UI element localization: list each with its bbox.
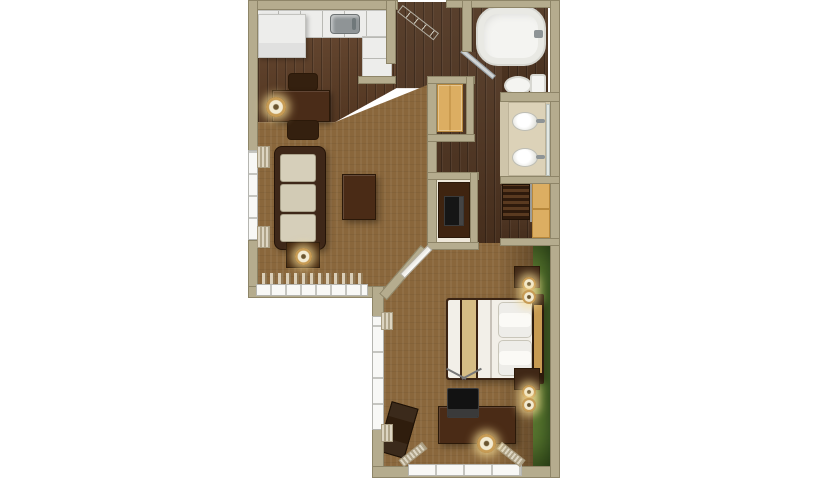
nightstand-top-lamp-1 — [522, 277, 536, 291]
kitchen-faucet — [352, 18, 356, 30]
bedroom-closet-bottom-wall — [500, 238, 560, 246]
bedroom-left-curtain-top — [381, 312, 393, 330]
crt-tv — [447, 388, 479, 418]
tub-faucet — [534, 30, 543, 38]
bedroom-left-curtain-bottom — [381, 424, 393, 442]
central-wall — [427, 80, 437, 248]
coffee-table — [342, 174, 376, 220]
sofa-cushion-2 — [280, 184, 316, 212]
toilet-tank — [530, 74, 546, 94]
bedroom-closet-shelf — [532, 180, 550, 238]
entry-closet-shelf — [437, 84, 463, 132]
vanity-sink-1 — [512, 112, 538, 131]
bathroom-mid-wall — [500, 92, 560, 102]
nightstand-bottom-lamp-2 — [522, 398, 536, 412]
floor-plan — [0, 0, 815, 480]
nightstand-bottom-lamp-1 — [522, 385, 536, 399]
bed-fold-line — [490, 300, 492, 378]
closet-hanging-clothes — [502, 184, 530, 220]
bed-headboard-gold-panel — [534, 305, 542, 373]
bedroom-bottom-window — [408, 464, 522, 476]
bathroom-left-wall — [462, 0, 472, 52]
living-left-curtain-top — [257, 146, 270, 168]
dining-chair-bottom — [287, 120, 319, 140]
nightstand-top-lamp-2 — [522, 290, 536, 304]
refrigerator — [258, 14, 306, 58]
dining-chair-top — [288, 73, 318, 91]
bed-pillow-1 — [498, 302, 532, 338]
kitchen-counter-stub-wall — [358, 76, 396, 84]
end-table-lamp — [295, 248, 312, 265]
entry-closet-wall-bottom — [427, 134, 475, 142]
tv-niche-wall-right — [470, 172, 478, 250]
living-bottom-curtain — [262, 273, 364, 284]
vanity-faucet-2 — [536, 155, 545, 159]
sofa-cushion-1 — [280, 154, 316, 182]
vanity-bottom-wall — [500, 176, 560, 184]
left-wall-upper — [248, 0, 258, 152]
dining-table-lamp — [266, 97, 286, 117]
bedroom-left-window — [372, 316, 384, 430]
kitchen-entry-divider-wall — [386, 0, 396, 64]
sofa-cushion-3 — [280, 214, 316, 242]
top-wall-kitchen — [248, 0, 398, 10]
vanity-faucet-1 — [536, 119, 545, 123]
living-tv — [444, 196, 464, 226]
entry-closet-wall-right — [466, 76, 474, 142]
living-bottom-window — [256, 284, 368, 296]
living-left-curtain-bottom — [257, 226, 270, 248]
bed-runner-tan — [460, 300, 478, 378]
tv-niche-wall-bottom — [427, 242, 479, 250]
vanity-sink-2 — [512, 148, 538, 167]
bedroom-floor-lamp — [477, 434, 496, 453]
